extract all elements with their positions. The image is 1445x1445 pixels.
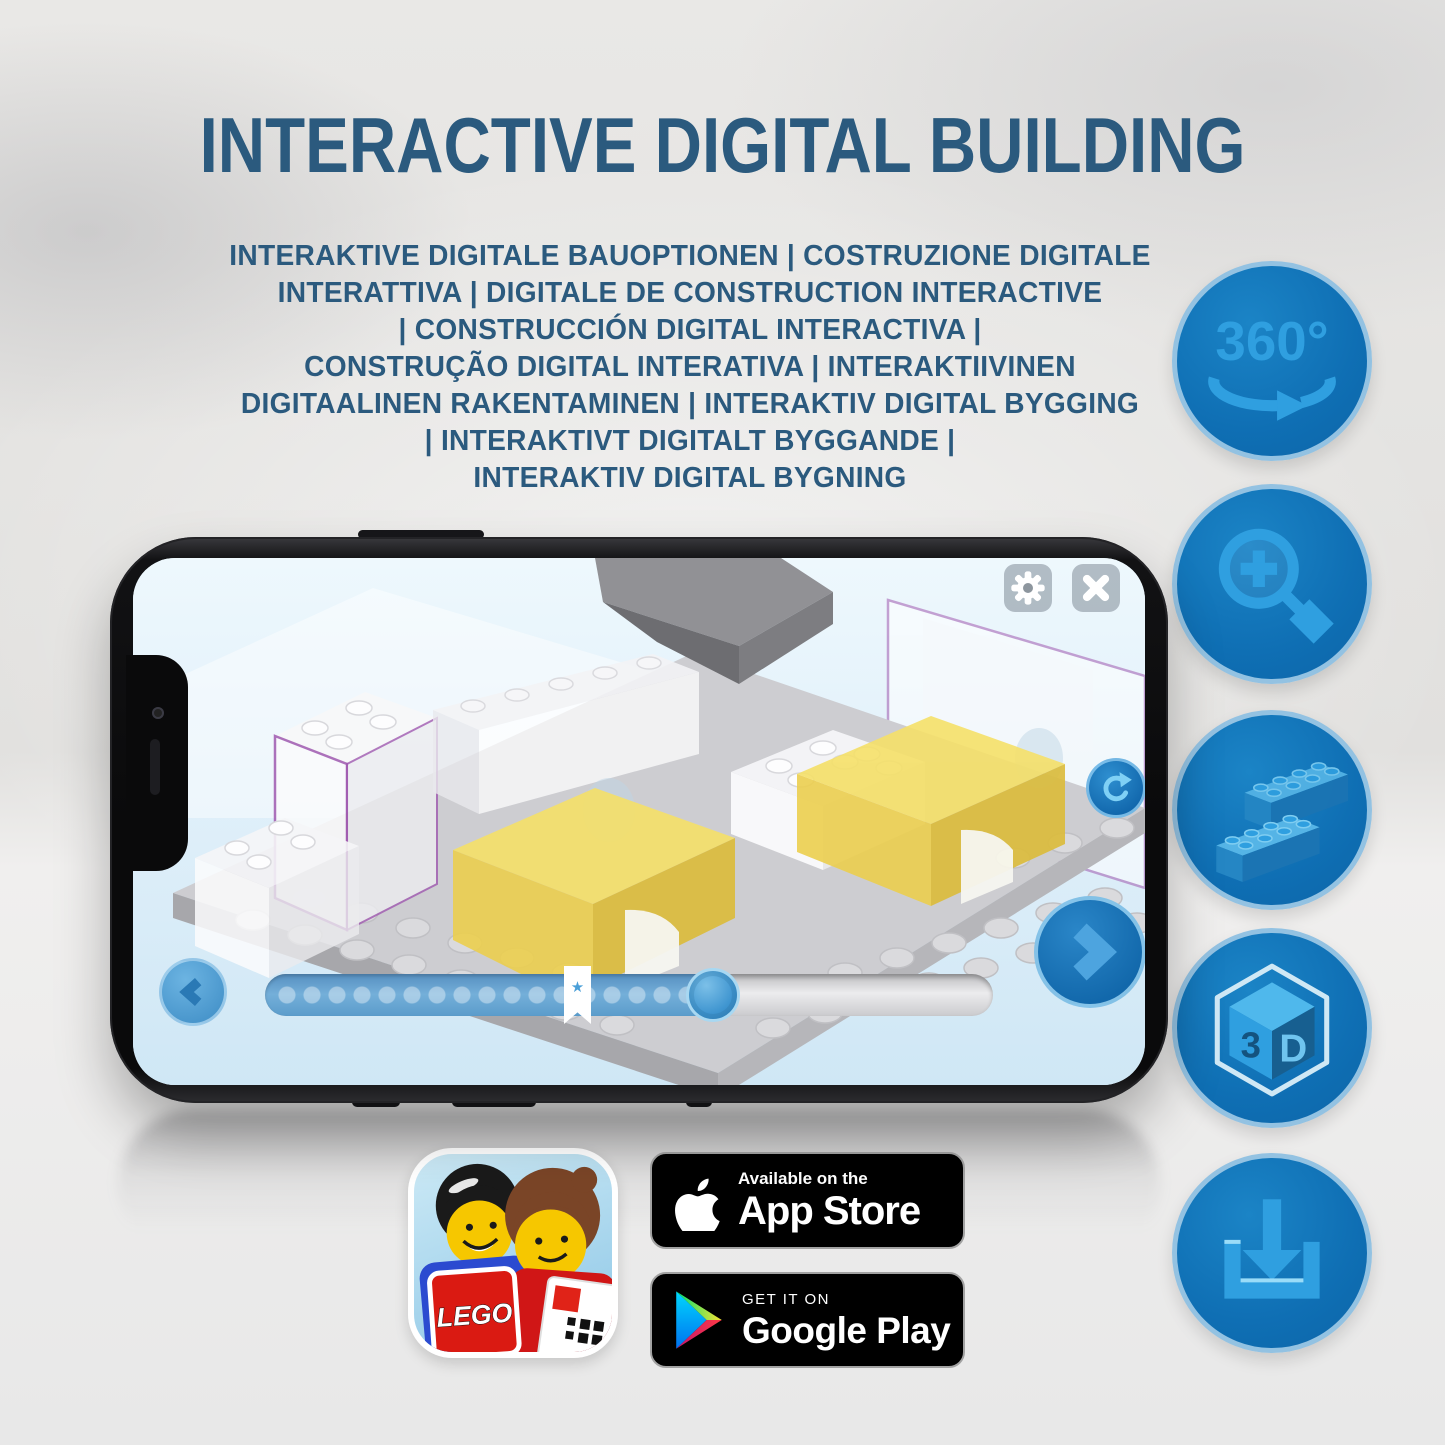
lego-app-icon[interactable]: LEGO (408, 1148, 618, 1358)
chevron-left-icon (171, 970, 215, 1014)
zoom-in-icon (1196, 508, 1348, 660)
next-step-button[interactable] (1034, 896, 1145, 1008)
building-app-screen: ★ (133, 558, 1145, 1085)
google-play-tagline: GET IT ON (742, 1292, 950, 1307)
apple-icon (672, 1171, 722, 1231)
close-icon (1078, 570, 1114, 606)
google-play-icon (672, 1289, 726, 1351)
close-button[interactable] (1072, 564, 1120, 612)
feature-360-rotation: 360° (1172, 261, 1372, 461)
app-store-name: App Store (738, 1191, 920, 1231)
front-camera (152, 707, 164, 719)
app-store-tagline: Available on the (738, 1170, 920, 1187)
lego-logo-text: LEGO (436, 1298, 514, 1333)
phone-notch (126, 655, 188, 871)
360-label: 360° (1215, 310, 1328, 372)
feature-download (1172, 1153, 1372, 1353)
progress-fill (265, 974, 735, 1016)
lego-app-art: LEGO (414, 1154, 612, 1352)
slider-thumb[interactable] (686, 968, 740, 1022)
previous-step-button[interactable] (159, 958, 227, 1026)
feature-3d-view: 3 D (1172, 928, 1372, 1128)
step-dots (275, 974, 715, 1016)
earpiece-speaker (150, 739, 160, 795)
app-store-badge[interactable]: Available on the App Store (650, 1152, 965, 1249)
360-rotation-icon: 360° (1196, 285, 1348, 437)
3d-label-d: D (1279, 1027, 1307, 1070)
google-play-badge[interactable]: GET IT ON Google Play (650, 1272, 965, 1368)
gear-icon (1008, 568, 1048, 608)
phone-reflection (118, 1110, 1160, 1260)
bricks-icon (1196, 734, 1348, 886)
star-icon: ★ (564, 978, 591, 996)
chevron-right-icon (1050, 912, 1130, 992)
settings-button[interactable] (1004, 564, 1052, 612)
download-icon (1196, 1177, 1348, 1329)
feature-bricks (1172, 710, 1372, 910)
3d-view-icon: 3 D (1196, 952, 1348, 1104)
rotate-icon (1096, 768, 1136, 808)
feature-zoom (1172, 484, 1372, 684)
lego-app-promo-page: INTERACTIVE DIGITAL BUILDING INTERAKTIVE… (0, 0, 1445, 1445)
build-progress-slider[interactable]: ★ (265, 974, 993, 1016)
page-title: INTERACTIVE DIGITAL BUILDING (0, 100, 1445, 191)
google-play-name: Google Play (742, 1312, 950, 1349)
lego-logo: LEGO (429, 1268, 520, 1352)
rotate-view-button[interactable] (1086, 758, 1145, 818)
3d-label-3: 3 (1241, 1024, 1261, 1065)
multilingual-subtitle: INTERAKTIVE DIGITALE BAUOPTIONEN | COSTR… (176, 238, 1204, 497)
smartphone: ★ (110, 537, 1168, 1103)
